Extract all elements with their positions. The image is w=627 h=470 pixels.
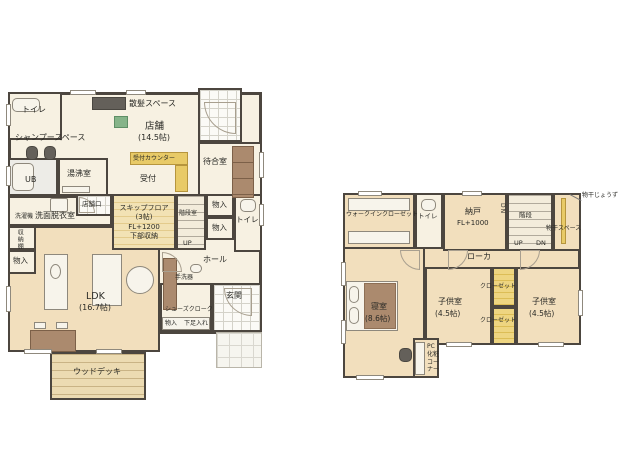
window: [6, 104, 11, 126]
f1-shampoo-space-label: シャンプースペース: [15, 133, 85, 143]
f2-pillow: [349, 307, 359, 324]
f2-kids-room2-label: 子供室: [532, 297, 556, 307]
f1-waiting-room-label: 待合室: [203, 157, 227, 167]
f1-kitchenette-label: 湯沸室: [67, 169, 91, 179]
f2-drying-pole-label: 物干じょうず: [582, 192, 618, 199]
f2-pc-line3: コーナー: [427, 359, 439, 375]
f2-wic-rack: [348, 198, 410, 211]
f1-skip-floor-note: 下部収納: [130, 232, 158, 240]
f2-up-label: UP: [514, 240, 523, 248]
f1-dining-chair: [56, 322, 68, 329]
f2-wic-rack: [348, 231, 410, 244]
window: [6, 166, 11, 186]
window: [538, 342, 564, 347]
window: [24, 349, 52, 354]
f2-pc-desk: [415, 342, 425, 375]
f1-skip-floor-name: スキップフロア: [120, 204, 169, 212]
f2-drying-space-room: [553, 193, 581, 251]
f2-dn-label: DN: [536, 240, 546, 248]
window: [259, 204, 264, 226]
window: [126, 90, 146, 95]
f1-storage-left-label: 物入: [13, 256, 28, 265]
f1-hand-basin-label: 手洗器: [175, 274, 193, 281]
f1-washroom-label: 洗面脱衣室: [35, 211, 75, 221]
f1-storage-bottom-label: 物入: [165, 320, 177, 327]
f1-reception-label: 受付: [140, 174, 156, 184]
f1-hall-label: ホール: [203, 255, 227, 265]
f2-kids-room2-size-label: (4.5帖): [529, 309, 554, 318]
f1-shop-label: 店舗: [145, 121, 164, 132]
floor-plan-canvas: トイレ 散髪スペース シャンプースペース 店舗 (14.5帖) 待合室 受付カウ…: [0, 0, 627, 470]
f1-toilet2-label: トイレ: [236, 215, 259, 224]
f2-kids-room1-label: 子供室: [438, 297, 462, 307]
f2-closet1-label: クローゼット: [480, 283, 516, 290]
f1-round-table: [126, 266, 154, 294]
f1-shampoo-chair: [26, 146, 38, 160]
f1-porch-tile: [216, 332, 262, 368]
f2-pc-line2: 化粧: [427, 351, 439, 359]
f2-stool: [399, 348, 412, 362]
f1-hand-basin-fixture: [190, 264, 202, 273]
window: [446, 342, 472, 347]
window: [578, 290, 583, 316]
f1-waiting-bench: [232, 146, 254, 198]
f1-skip-floor-size: (3帖): [136, 213, 153, 221]
f1-shop-size-label: (14.5帖): [138, 133, 170, 143]
f1-washing-machine-label: 洗濯機: [15, 213, 33, 220]
f1-ub-label: UB: [25, 175, 36, 185]
f2-closet2-label: クローゼット: [480, 317, 516, 324]
f2-stairs-label: 階段: [519, 212, 532, 220]
f2-pc-corner-label: PC 化粧 コーナー: [427, 343, 439, 374]
f1-ldk-label: LDK: [86, 291, 105, 302]
f1-storage-shelf-label: 収納棚: [16, 229, 23, 250]
f2-storage-room-label: 納戸: [465, 207, 481, 217]
f2-corridor-label: ローカ: [467, 252, 491, 262]
f2-storage-room-level-label: FL+1000: [457, 219, 489, 227]
f1-wood-deck-label: ウッドデッキ: [73, 367, 121, 377]
window: [358, 191, 382, 196]
window: [259, 152, 264, 178]
f2-pillow: [349, 286, 359, 303]
window: [96, 349, 122, 354]
f1-kitchen-island: [44, 254, 68, 310]
f1-entrance-label: 玄関: [226, 291, 242, 301]
window: [6, 286, 11, 312]
f2-drying-pole-fixture: [561, 198, 566, 244]
window: [462, 191, 482, 196]
f1-reception-counter-return: [175, 165, 188, 192]
f1-skip-floor-level: FL+1200: [128, 223, 160, 231]
window: [341, 320, 346, 344]
f1-shampoo-chair: [44, 146, 56, 160]
f2-kids-room1-size-label: (4.5帖): [435, 309, 460, 318]
f1-reception-counter-label: 受付カウンター: [133, 155, 175, 162]
f1-dining-chair: [34, 322, 46, 329]
f1-storage-top-label: 物入: [212, 200, 227, 209]
f2-pc-line1: PC: [427, 343, 439, 351]
f1-haircut-space-label: 散髪スペース: [129, 99, 176, 109]
f1-barber-counter: [92, 97, 126, 110]
f1-shop-door-label: 店舗口: [82, 201, 102, 209]
f1-washing-machine-fixture: [50, 198, 68, 212]
f1-stair-room-label: 階段室: [179, 210, 197, 217]
f2-drying-space-label: 物干スペース: [546, 225, 581, 232]
f2-wic-label: ウォークインクローゼット: [346, 211, 418, 218]
f2-bedroom-label: 寝室: [371, 302, 387, 312]
f1-kitchenette-counter: [62, 186, 90, 193]
f1-up-label: UP: [183, 240, 192, 248]
window: [341, 262, 346, 286]
f2-bedroom-size-label: (8.6帖): [365, 314, 390, 323]
f1-toilet2-fixture: [240, 199, 256, 212]
f1-skip-floor-label: スキップフロア (3帖) FL+1200 下部収納: [112, 198, 176, 246]
f1-toilet-label: トイレ: [22, 105, 46, 115]
f1-shoes-closet-label: シューズクローク: [165, 306, 213, 313]
f1-kitchen-sink: [50, 264, 61, 279]
f2-toilet-fixture: [421, 199, 436, 211]
f1-green-mat: [114, 116, 128, 128]
window: [356, 375, 384, 380]
f2-dn-wall-label: DN: [499, 203, 506, 214]
f1-storage-mid-label: 物入: [212, 223, 227, 232]
window: [70, 90, 96, 95]
f2-toilet-label: トイレ: [418, 213, 438, 221]
f2-closet2: [492, 307, 516, 345]
f1-ldk-size-label: (16.7帖): [79, 303, 111, 313]
f1-shoe-rack-label: 下足入れ: [184, 320, 208, 327]
